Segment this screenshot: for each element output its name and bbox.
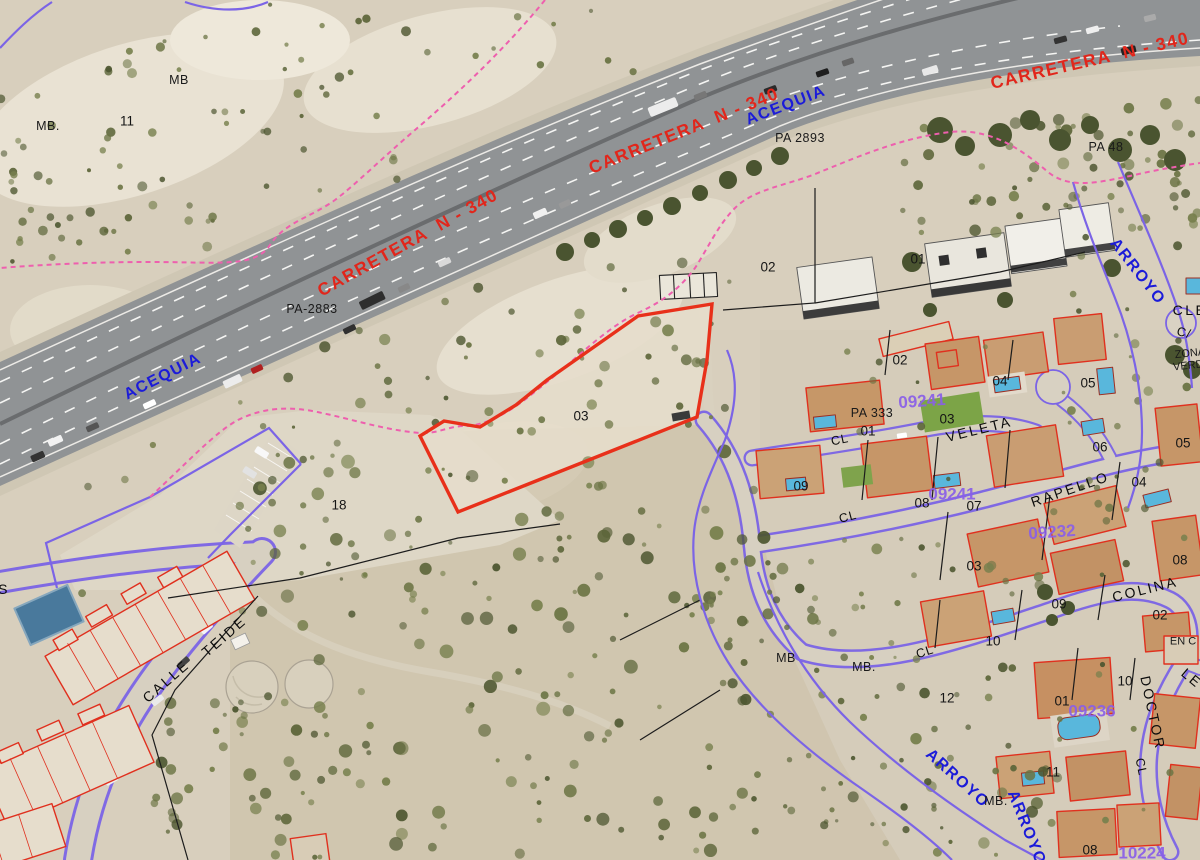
orthophoto-map	[0, 0, 1200, 860]
cul-de-sac-veleta	[1036, 370, 1070, 404]
map-viewport[interactable]: CARRETERA N - 340CARRETERA N - 340CARRET…	[0, 0, 1200, 860]
lawn	[841, 464, 873, 488]
round-pad	[285, 660, 333, 708]
